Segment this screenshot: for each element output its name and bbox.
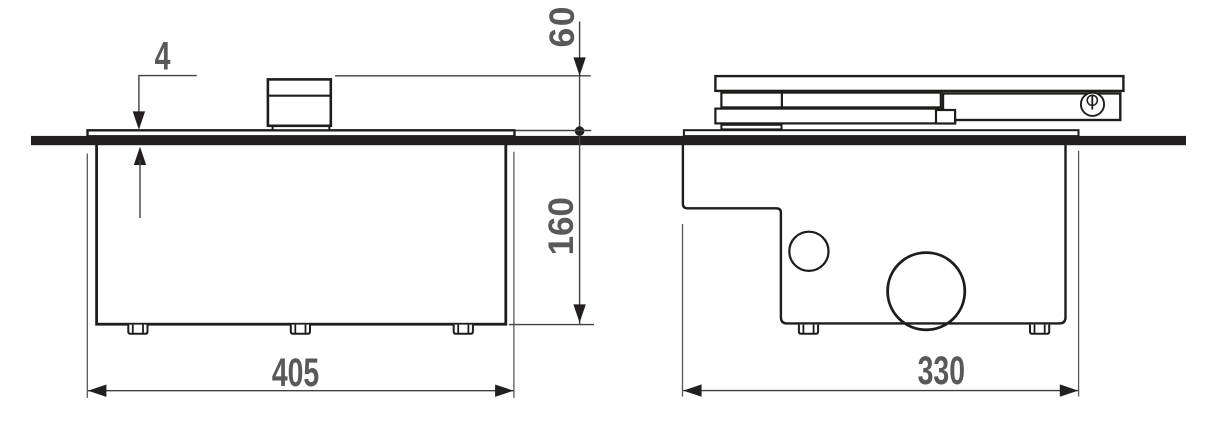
svg-text:160: 160 — [542, 197, 581, 255]
svg-text:330: 330 — [918, 349, 965, 393]
svg-text:60: 60 — [542, 5, 582, 48]
svg-text:405: 405 — [272, 351, 319, 395]
svg-text:4: 4 — [155, 35, 171, 79]
